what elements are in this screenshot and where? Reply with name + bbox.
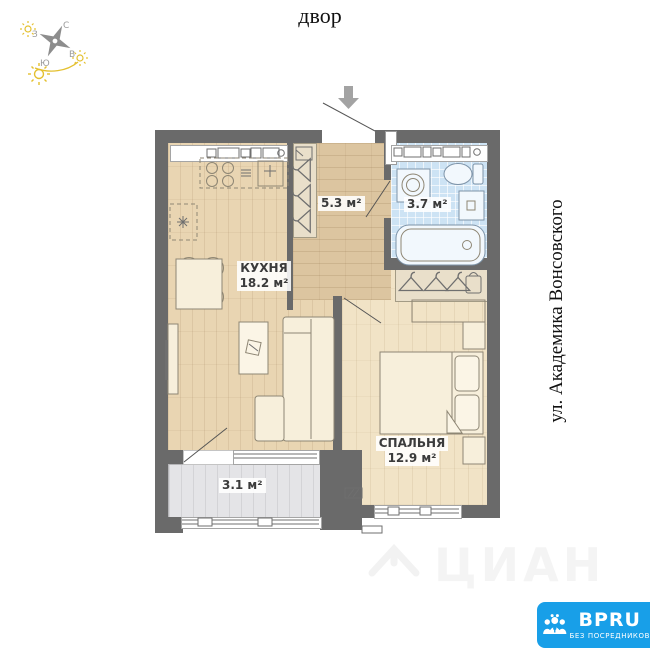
compass-west-label: З [32, 30, 38, 40]
wall-top-left [155, 130, 322, 143]
balcony-window [181, 517, 322, 529]
street-label: ул. Академика Вонсовского [546, 161, 568, 461]
wall-left [155, 143, 168, 464]
kitchen-label: КУХНЯ 18.2 м² [226, 261, 302, 291]
bathroom-shelf-strip [391, 145, 488, 162]
wall-balcony-corner [155, 517, 183, 533]
bedroom-wardrobe [395, 268, 489, 302]
balcony-doorway [183, 450, 234, 465]
wall-balcony-bedroom-block [320, 450, 362, 530]
courtyard-label: двор [250, 3, 390, 29]
brand-logo: BPRU БЕЗ ПОСРЕДНИКОВ [537, 602, 650, 648]
people-icon [542, 608, 568, 642]
kitchen-name: КУХНЯ [237, 261, 291, 276]
bathroom-area: 3.7 м² [404, 197, 451, 212]
kitchen-counter-strip [170, 145, 288, 162]
wall-balcony-door-jamb [168, 450, 183, 464]
floorplan-page: двор С З В Ю ЦИАН [0, 0, 650, 650]
wall-bedroom-bottom-left [362, 505, 374, 518]
logo-tagline: БЕЗ ПОСРЕДНИКОВ [570, 632, 650, 640]
compass-south-label: Ю [40, 59, 50, 69]
bedroom-window [374, 505, 462, 519]
wall-living-bedroom [333, 296, 342, 464]
wall-right [487, 143, 500, 518]
balcony-area: 3.1 м² [219, 478, 266, 493]
compass-east-label: В [69, 50, 75, 60]
bedroom-name: СПАЛЬНЯ [376, 436, 449, 451]
kitchen-area: 18.2 м² [237, 276, 292, 291]
entrance-arrow-icon [338, 86, 359, 109]
entrance-door-swing [323, 103, 375, 131]
wall-bathroom-bottom [384, 258, 487, 270]
wall-bedroom-bottom-right [460, 505, 487, 518]
watermark: ЦИАН [368, 538, 605, 592]
house-icon [368, 539, 420, 591]
bedroom-label: СПАЛЬНЯ 12.9 м² [372, 436, 452, 466]
compass-north-label: С [63, 21, 69, 31]
hallway-closet [293, 143, 317, 238]
living-window [233, 450, 320, 465]
logo-brand-text: BPRU [579, 611, 641, 630]
bedroom-floor [342, 268, 487, 505]
wall-hallway-bathroom-bottom [384, 218, 391, 258]
bedroom-area: 12.9 м² [385, 451, 440, 466]
bathroom-label: 3.7 м² [404, 197, 451, 212]
hallway-label: 5.3 м² [318, 196, 365, 211]
hallway-area: 5.3 м² [318, 196, 365, 211]
compass: С З В Ю [8, 8, 104, 92]
watermark-text: ЦИАН [434, 538, 605, 592]
balcony-label: 3.1 м² [219, 478, 266, 493]
